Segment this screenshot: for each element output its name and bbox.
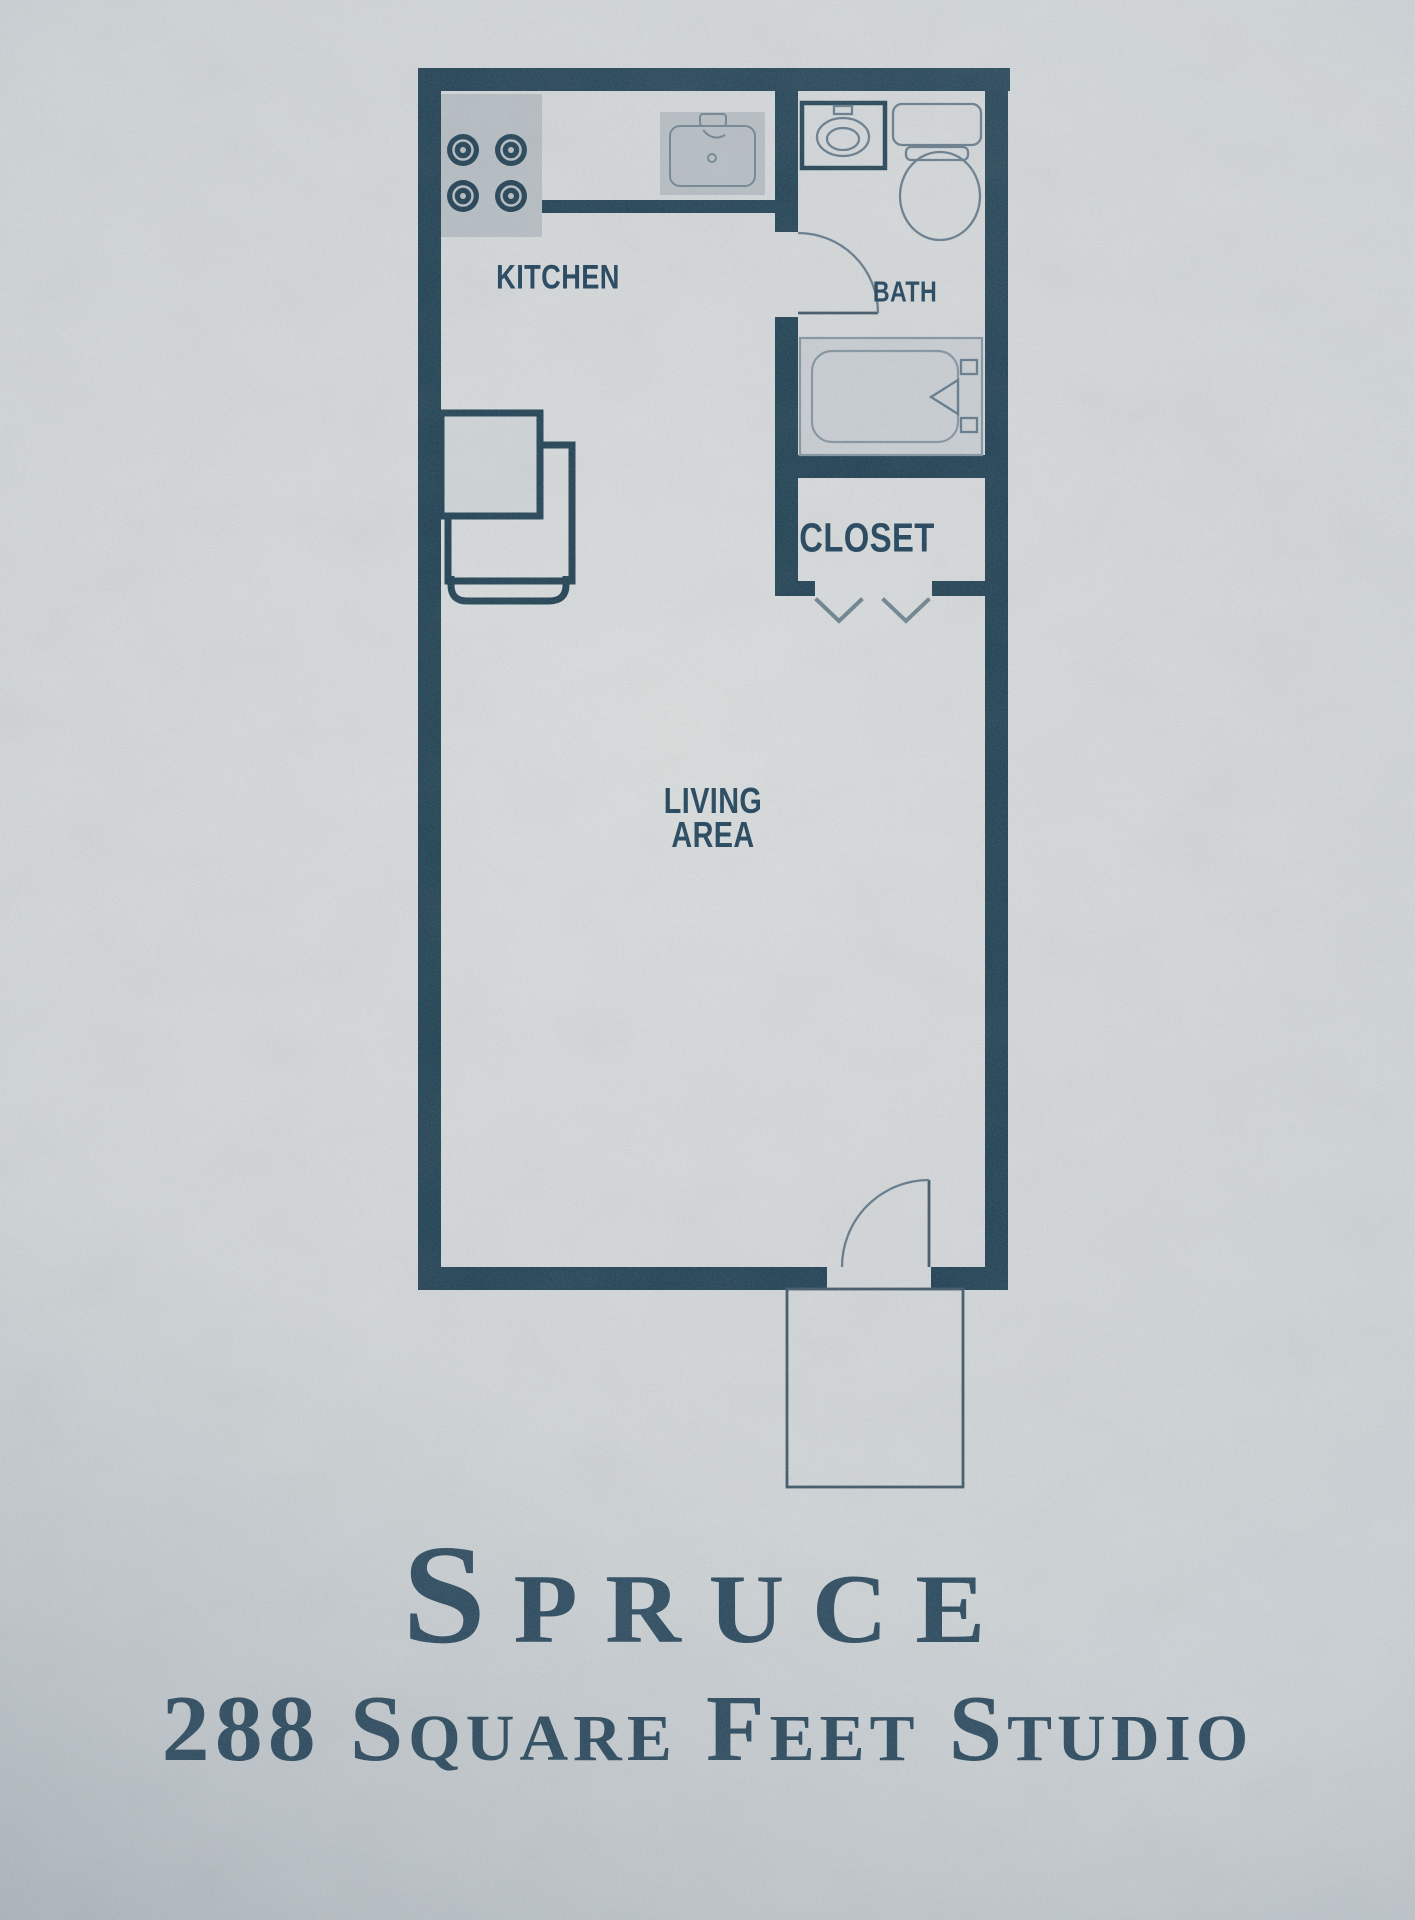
kitchen-sink-icon: [660, 112, 765, 195]
kitchen-label: KITCHEN: [496, 259, 620, 298]
wall-bath-closet-divider: [775, 455, 1008, 478]
entry-door-swing-arc: [842, 1180, 929, 1267]
bathtub-outline: [800, 338, 982, 455]
wall-bottom-right: [931, 1267, 1008, 1290]
plan-subtitle: 288 Square Feet Studio: [0, 1682, 1415, 1776]
wall-left: [418, 68, 441, 1290]
living-area-label-line1: LIVING: [664, 784, 762, 818]
wall-closet-bottom-left: [775, 581, 815, 596]
toilet-tank: [893, 104, 981, 145]
wall-right: [985, 68, 1008, 1290]
bath-door-swing-arc: [798, 233, 878, 313]
walls: [418, 68, 1010, 1290]
bifold-door-right: [884, 600, 928, 621]
stove-icon: [441, 94, 542, 237]
refrigerator-body: [441, 413, 540, 516]
wall-bath-divider-upper: [775, 91, 798, 232]
closet-label: CLOSET: [799, 515, 934, 562]
bath-door-icon: [798, 233, 878, 313]
entry-door-icon: [842, 1180, 929, 1267]
bath-label: BATH: [873, 277, 937, 310]
toilet-bowl: [900, 152, 980, 240]
bathroom-sink-faucet: [834, 106, 852, 114]
bathtub-icon: [800, 338, 982, 455]
entry-stoop-icon: [787, 1289, 963, 1487]
wall-top: [418, 68, 1010, 91]
wall-closet-bottom-right: [932, 581, 985, 596]
refrigerator-icon: [441, 413, 572, 601]
stove-body: [441, 94, 542, 237]
closet-bifold-doors-icon: [817, 600, 928, 621]
bathroom-sink-counter: [802, 103, 885, 168]
wall-bottom-left: [418, 1267, 827, 1290]
bifold-door-left: [817, 600, 861, 621]
floor-plan-photo: KITCHEN BATH CLOSET LIVING AREA Spruce 2…: [0, 0, 1415, 1920]
living-area-label: LIVING AREA: [664, 784, 762, 852]
bathroom-sink-icon: [802, 103, 885, 168]
living-area-label-line2: AREA: [664, 818, 762, 852]
plan-title: Spruce: [0, 1523, 1415, 1665]
bathroom-sink-bowl: [827, 128, 859, 150]
kitchen-counter-edge: [537, 200, 775, 213]
toilet-icon: [893, 104, 981, 240]
